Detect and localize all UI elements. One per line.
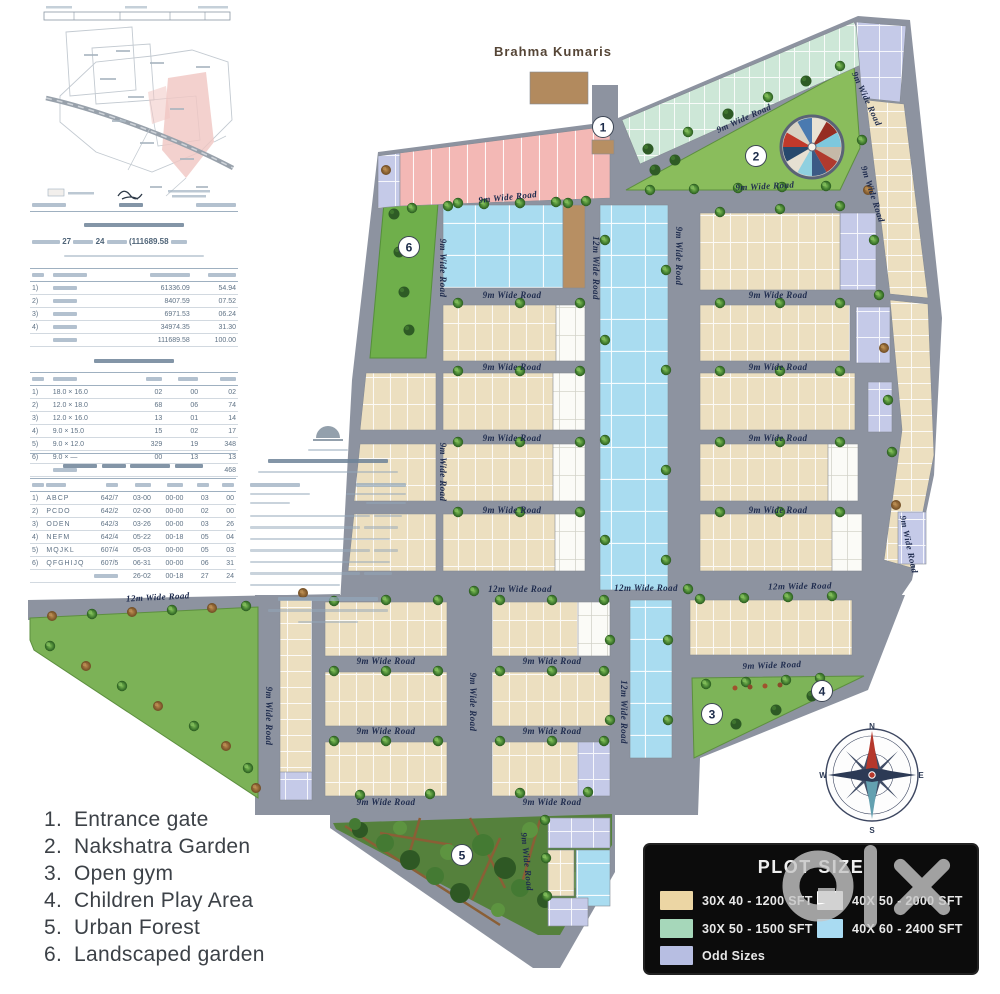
svg-text:4: 4 [819,685,826,699]
svg-text:3: 3 [709,708,716,722]
marker-children-play-area: 4 [812,681,833,702]
legend-item-odd-sizes: Odd Sizes [660,946,765,965]
svg-text:9m Wide Road: 9m Wide Road [749,505,808,515]
signature-squiggle [118,191,142,199]
svg-text:9m Wide Road: 9m Wide Road [523,656,582,666]
swatch-30x40 [660,891,693,910]
marker-entrance-gate: 1 [593,117,614,138]
official-letter-document [246,426,410,629]
marker-urban-forest: 5 [452,845,473,866]
svg-text:9m Wide Road: 9m Wide Road [749,362,808,372]
brahma-kumaris-label: Brahma Kumaris [494,44,612,59]
swatch-30x50 [660,919,693,938]
svg-text:9m Wide Road: 9m Wide Road [483,290,542,300]
svg-text:9m Wide Road: 9m Wide Road [749,433,808,443]
svg-text:1: 1 [600,121,607,135]
svg-text:9m Wide Road: 9m Wide Road [674,227,684,286]
svg-text:12m Wide Road: 12m Wide Road [768,580,832,591]
svg-text:9m Wide Road: 9m Wide Road [483,362,542,372]
svg-text:N: N [869,722,875,731]
legend-item-40x60: 40X 60 - 2400 SFT [817,919,963,938]
svg-text:9m Wide Road: 9m Wide Road [749,290,808,300]
land-use-table: 1)61336.0954.942)8407.5907.523)6971.5306… [30,268,238,347]
swatch-odd-sizes [660,946,693,965]
layout-plan-image: 9m Wide Road 9m Wide Road 9m Wide Road 9… [0,0,1000,994]
svg-text:12m Wide Road: 12m Wide Road [488,584,552,594]
svg-text:9m Wide Road: 9m Wide Road [483,433,542,443]
left-park [30,607,258,798]
nakshatra-zodiac-circle [781,116,843,178]
svg-text:9m Wide Road: 9m Wide Road [264,687,274,746]
list-item: 4.Children Play Area [44,887,265,914]
svg-text:9m Wide Road: 9m Wide Road [742,659,801,671]
list-item: 5.Urban Forest [44,914,265,941]
doc-header [30,202,238,208]
government-emblem-icon [316,426,340,438]
svg-text:W: W [819,771,827,780]
svg-text:9m Wide Road: 9m Wide Road [357,656,416,666]
brahma-kumaris-building [530,72,588,104]
svg-text:9m Wide Road: 9m Wide Road [438,239,448,298]
legend-item-30x40: 30X 40 - 1200 SFT [660,891,813,910]
swatch-40x50 [817,891,843,910]
svg-text:E: E [918,771,924,780]
svg-text:9m Wide Road: 9m Wide Road [523,726,582,736]
marker-landscaped-garden: 6 [399,237,420,258]
svg-text:2: 2 [753,150,760,164]
plot-size-legend: PLOT SIZE 30X 40 - 1200 SFT 30X 50 - 150… [645,845,977,973]
marker-nakshatra-garden: 2 [746,146,767,167]
list-item: 3.Open gym [44,860,265,887]
legend-item-40x50: 40X 50 - 2000 SFT [817,891,963,910]
marker-open-gym: 3 [702,704,723,725]
plot-size-title: PLOT SIZE [645,857,977,878]
list-item: 6.Landscaped garden [44,941,265,968]
survey-sketch [44,6,233,199]
svg-text:5: 5 [459,849,466,863]
svg-text:S: S [869,826,875,835]
building-plot [563,205,585,288]
svg-text:9m Wide Road: 9m Wide Road [357,797,416,807]
blue-plots-strip [600,205,668,590]
swatch-40x60 [817,919,843,938]
survey-numbers-document: 1)ABCP642/703-0000-0003002)PCDO642/202-0… [30,450,236,583]
svg-text:12m Wide Road: 12m Wide Road [614,583,678,593]
list-item: 1.Entrance gate [44,806,265,833]
svg-text:6: 6 [406,241,413,255]
svg-text:12m Wide Road: 12m Wide Road [619,680,629,744]
list-item: 2.Nakshatra Garden [44,833,265,860]
survey-numbers-table: 1)ABCP642/703-0000-0003002)PCDO642/202-0… [30,478,236,583]
amenities-legend-list: 1.Entrance gate 2.Nakshatra Garden 3.Ope… [44,806,265,968]
legend-item-30x50: 30X 50 - 1500 SFT [660,919,813,938]
svg-text:9m Wide Road: 9m Wide Road [468,673,478,732]
svg-text:9m Wide Road: 9m Wide Road [438,443,448,502]
compass-rose: N E S W [819,722,924,835]
total-extent-line: 27 24 (111689.58 [32,237,238,246]
svg-text:9m Wide Road: 9m Wide Road [483,505,542,515]
svg-text:12m Wide Road: 12m Wide Road [591,236,601,300]
survey-statistics-document: 27 24 (111689.58 1)61336.0954.942)8407.5… [30,202,238,477]
svg-text:9m Wide Road: 9m Wide Road [523,797,582,807]
svg-text:9m Wide Road: 9m Wide Road [357,726,416,736]
